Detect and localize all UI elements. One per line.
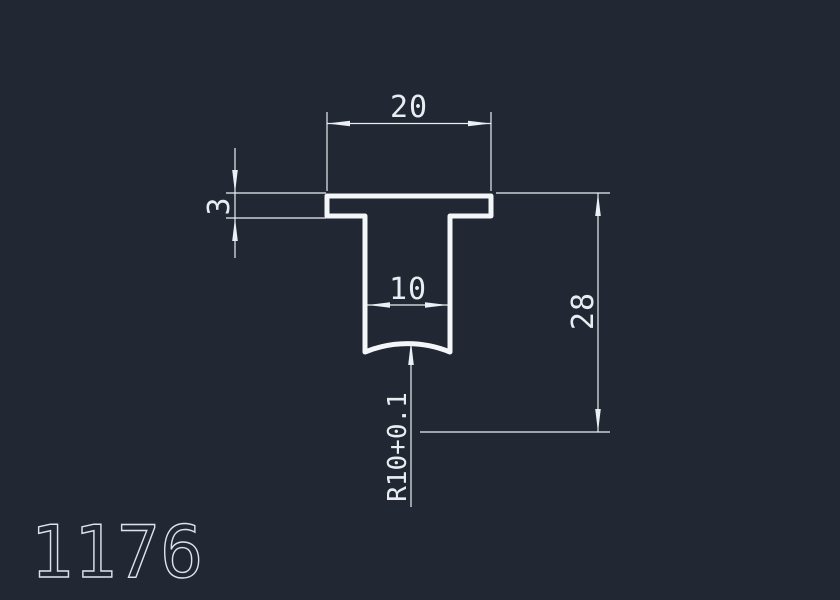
dimension-text-top-width: 20 bbox=[390, 90, 428, 125]
dimension-top-width: 20 bbox=[327, 90, 491, 191]
part-number: 1176 bbox=[30, 510, 203, 594]
dimension-text-flange-thickness: 3 bbox=[202, 196, 237, 215]
arrowhead-right-icon bbox=[425, 302, 448, 308]
cad-drawing: 20 3 10 28 bbox=[0, 0, 840, 600]
leader-text-bottom-radius: R10+0.1 bbox=[383, 392, 413, 502]
arrowhead-up-icon bbox=[595, 193, 601, 216]
dimension-stem-width: 10 bbox=[367, 272, 448, 308]
dimension-text-stem-width: 10 bbox=[389, 272, 427, 307]
arrowhead-left-icon bbox=[327, 121, 350, 127]
arrowhead-left-icon bbox=[368, 302, 391, 308]
cad-drawing-canvas: 20 3 10 28 bbox=[0, 0, 840, 600]
arrowhead-right-icon bbox=[468, 121, 491, 127]
dimension-flange-thickness: 3 bbox=[202, 148, 326, 258]
arrowhead-down-icon bbox=[232, 170, 238, 193]
leader-bottom-radius: R10+0.1 bbox=[383, 341, 414, 507]
arrowhead-up-icon bbox=[232, 218, 238, 241]
arrowhead-down-icon bbox=[595, 409, 601, 432]
part-number-text: 1176 bbox=[30, 510, 203, 594]
dimension-text-overall-height: 28 bbox=[566, 292, 601, 330]
